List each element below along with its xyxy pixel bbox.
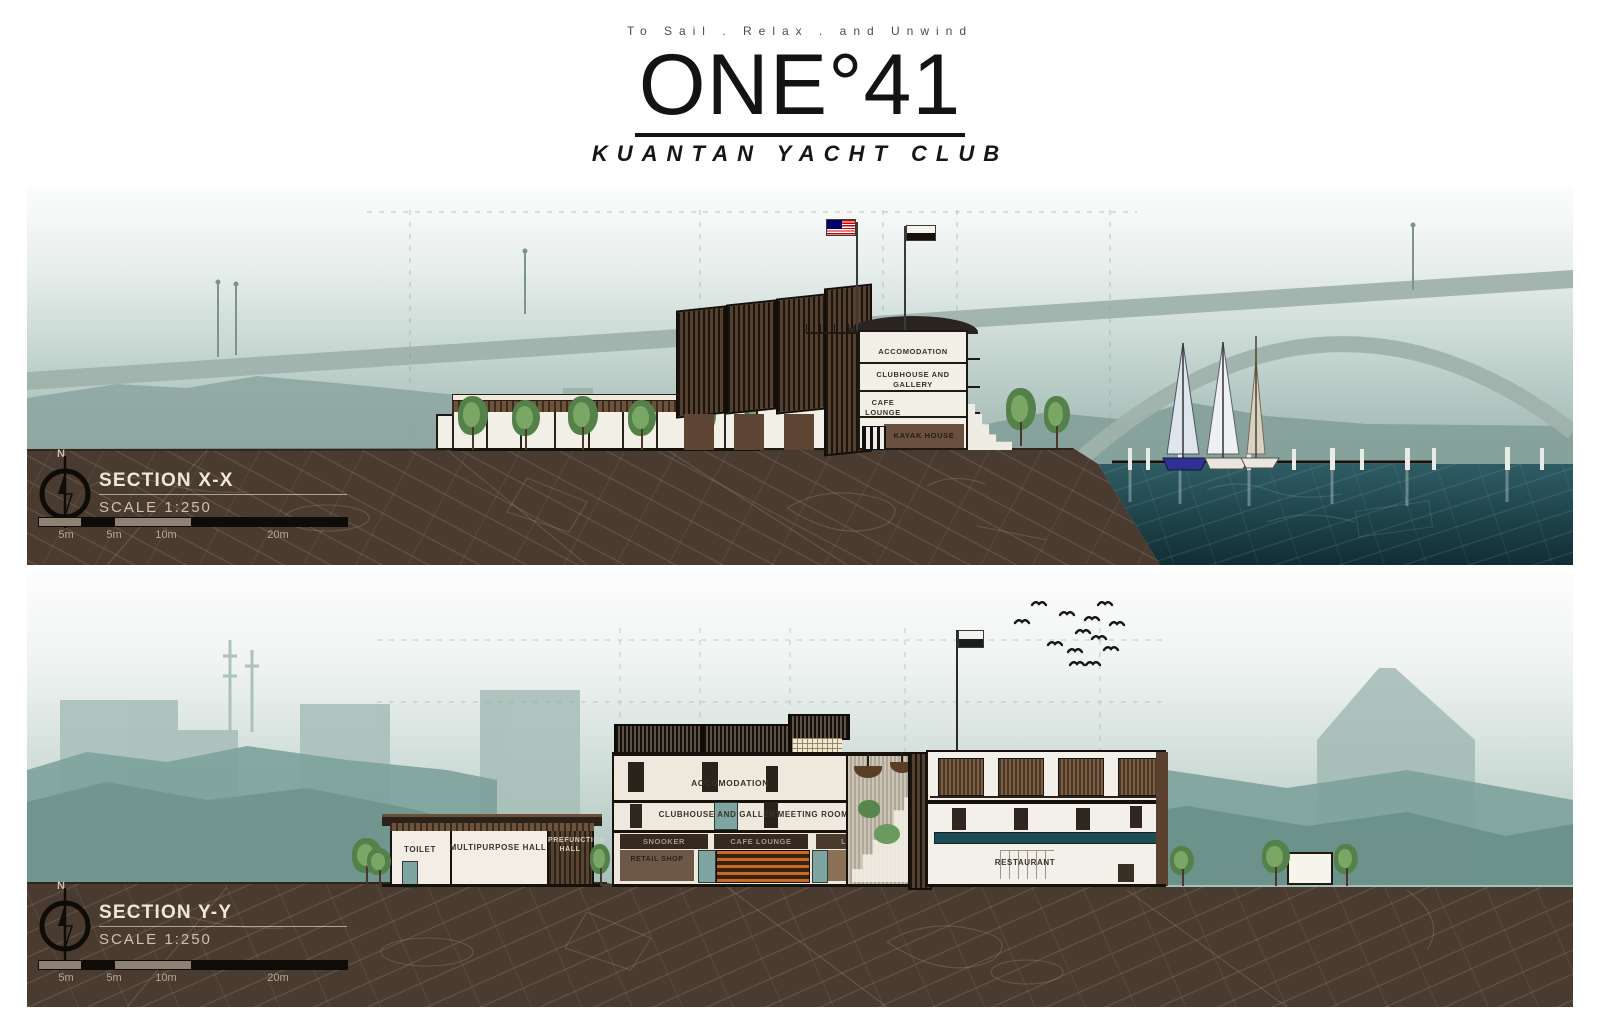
atrium bbox=[846, 756, 910, 884]
room-label-accomodation-yy: ACCOMODATION bbox=[640, 778, 820, 789]
presentation-board: To Sail . Relax . and Unwind ONE°41 KUAN… bbox=[0, 0, 1600, 1029]
balcony-stub bbox=[968, 358, 980, 360]
atrium-plant bbox=[858, 800, 880, 818]
door bbox=[952, 808, 966, 830]
tagline: To Sail . Relax . and Unwind bbox=[0, 24, 1600, 38]
small-hut bbox=[1287, 852, 1333, 885]
flagpole bbox=[856, 222, 858, 330]
scale-bar: 5m 5m 10m 20m bbox=[38, 517, 348, 545]
section-xx-scale: SCALE 1:250 bbox=[99, 499, 212, 516]
scale-bar-segments bbox=[38, 960, 348, 970]
scalebar-label: 10m bbox=[146, 529, 186, 541]
scalebar-label: 20m bbox=[258, 529, 298, 541]
room-label-accomodation: ACCOMODATION bbox=[860, 347, 966, 357]
scale-bar-segments bbox=[38, 517, 348, 527]
room-label-clubhouse-gallery: CLUBHOUSE AND GALLERY bbox=[872, 370, 954, 390]
tree bbox=[590, 844, 610, 886]
hall-clerestory-louver bbox=[390, 823, 594, 831]
tree bbox=[1170, 846, 1194, 886]
hall-base bbox=[382, 884, 602, 887]
room-label-multipurpose-hall: MULTIPURPOSE HALL bbox=[446, 843, 550, 853]
balcony-slat-panel bbox=[938, 758, 984, 796]
tree bbox=[1006, 388, 1036, 446]
louver-screen bbox=[726, 299, 776, 414]
tree bbox=[568, 396, 598, 450]
malaysia-flag bbox=[826, 219, 856, 236]
section-yy-panel: TOILET MULTIPURPOSE HALL PREFUNCTION HAL… bbox=[27, 572, 1573, 1007]
room-label-cafe-lounge: CAFE LOUNGE bbox=[862, 398, 904, 418]
restaurant-base bbox=[926, 884, 1166, 887]
hall-wall bbox=[450, 831, 452, 886]
louver-screen bbox=[776, 293, 826, 414]
room-label-retail-shop: RETAIL SHOP bbox=[628, 855, 686, 864]
flagpole bbox=[904, 226, 906, 330]
scalebar-label: 5m bbox=[46, 972, 86, 984]
balcony-railing bbox=[930, 796, 1162, 798]
room-label-prefunction-hall: PREFUNCTION HALL bbox=[548, 836, 592, 854]
boat-rig-line bbox=[901, 752, 903, 762]
section-yy-scale: SCALE 1:250 bbox=[99, 931, 212, 948]
retail-shop-room: RETAIL SHOP bbox=[620, 850, 694, 881]
striped-door bbox=[862, 426, 886, 450]
basement-glass bbox=[698, 850, 716, 883]
pahang-flag bbox=[958, 630, 984, 648]
kayak-house-band: KAYAK HOUSE bbox=[884, 424, 964, 448]
floor-line bbox=[860, 390, 966, 392]
titleblock-rule bbox=[99, 494, 347, 495]
basement-glass bbox=[812, 850, 828, 883]
room-label-kayak-house: KAYAK HOUSE bbox=[884, 431, 964, 441]
room-label-toilet: TOILET bbox=[392, 845, 448, 855]
room-label-snooker: SNOOKER bbox=[620, 834, 708, 847]
scale-bar: 5m 5m 10m 20m bbox=[38, 960, 348, 988]
scalebar-label: 5m bbox=[46, 529, 86, 541]
tree bbox=[1044, 396, 1070, 448]
floor-slab bbox=[928, 800, 1164, 804]
floor-line bbox=[860, 362, 966, 364]
balcony-stub bbox=[968, 386, 980, 388]
cafe-lounge-band: CAFE LOUNGE bbox=[714, 834, 808, 849]
louver-screen bbox=[676, 305, 726, 418]
door bbox=[1076, 808, 1090, 830]
scalebar-label: 20m bbox=[258, 972, 298, 984]
boat-rig-line bbox=[867, 754, 869, 766]
section-xx-title: SECTION X-X bbox=[99, 470, 234, 492]
titleblock-rule bbox=[99, 926, 347, 927]
pool-band bbox=[934, 832, 1158, 844]
scalebar-label: 5m bbox=[94, 972, 134, 984]
tree bbox=[628, 400, 656, 450]
tree bbox=[1262, 840, 1290, 886]
screen-post bbox=[784, 414, 814, 450]
project-title: ONE°41 bbox=[0, 42, 1600, 128]
tree bbox=[1334, 844, 1358, 886]
flagpole bbox=[956, 630, 958, 752]
tree bbox=[512, 400, 540, 450]
screen-post bbox=[734, 414, 764, 450]
tree bbox=[458, 396, 488, 450]
section-xx-panel: ACCOMODATION CLUBHOUSE AND GALLERY CAFE … bbox=[27, 186, 1573, 565]
snooker-band: SNOOKER bbox=[620, 834, 708, 849]
scalebar-label: 10m bbox=[146, 972, 186, 984]
bird-flock bbox=[1015, 602, 1124, 665]
north-compass-icon bbox=[38, 884, 94, 962]
tree bbox=[367, 848, 391, 886]
scalebar-label: 5m bbox=[94, 529, 134, 541]
balcony-slat-panel bbox=[1058, 758, 1104, 796]
restaurant-furniture bbox=[1118, 864, 1134, 882]
room-label-cafe-lounge-yy: CAFE LOUNGE bbox=[714, 834, 808, 847]
pahang-flag bbox=[906, 225, 936, 241]
tower-louver-top bbox=[788, 714, 850, 740]
door bbox=[1014, 808, 1028, 830]
screen-post bbox=[684, 414, 714, 450]
project-subtitle: KUANTAN YACHT CLUB bbox=[0, 141, 1600, 167]
title-underline bbox=[635, 133, 965, 137]
atrium-plant bbox=[874, 824, 900, 844]
room-label-restaurant: RESTAURANT bbox=[965, 858, 1085, 868]
kayak-rack-storage bbox=[716, 850, 810, 883]
restaurant-right-pillar bbox=[1156, 752, 1168, 886]
malaysia-flag-canton bbox=[827, 220, 842, 229]
section-yy-title: SECTION Y-Y bbox=[99, 902, 232, 924]
balcony-slat-panel bbox=[998, 758, 1044, 796]
roof-railing bbox=[806, 324, 858, 334]
hanging-boat bbox=[854, 766, 882, 778]
door bbox=[1130, 806, 1142, 828]
clubhouse-base bbox=[612, 884, 910, 887]
